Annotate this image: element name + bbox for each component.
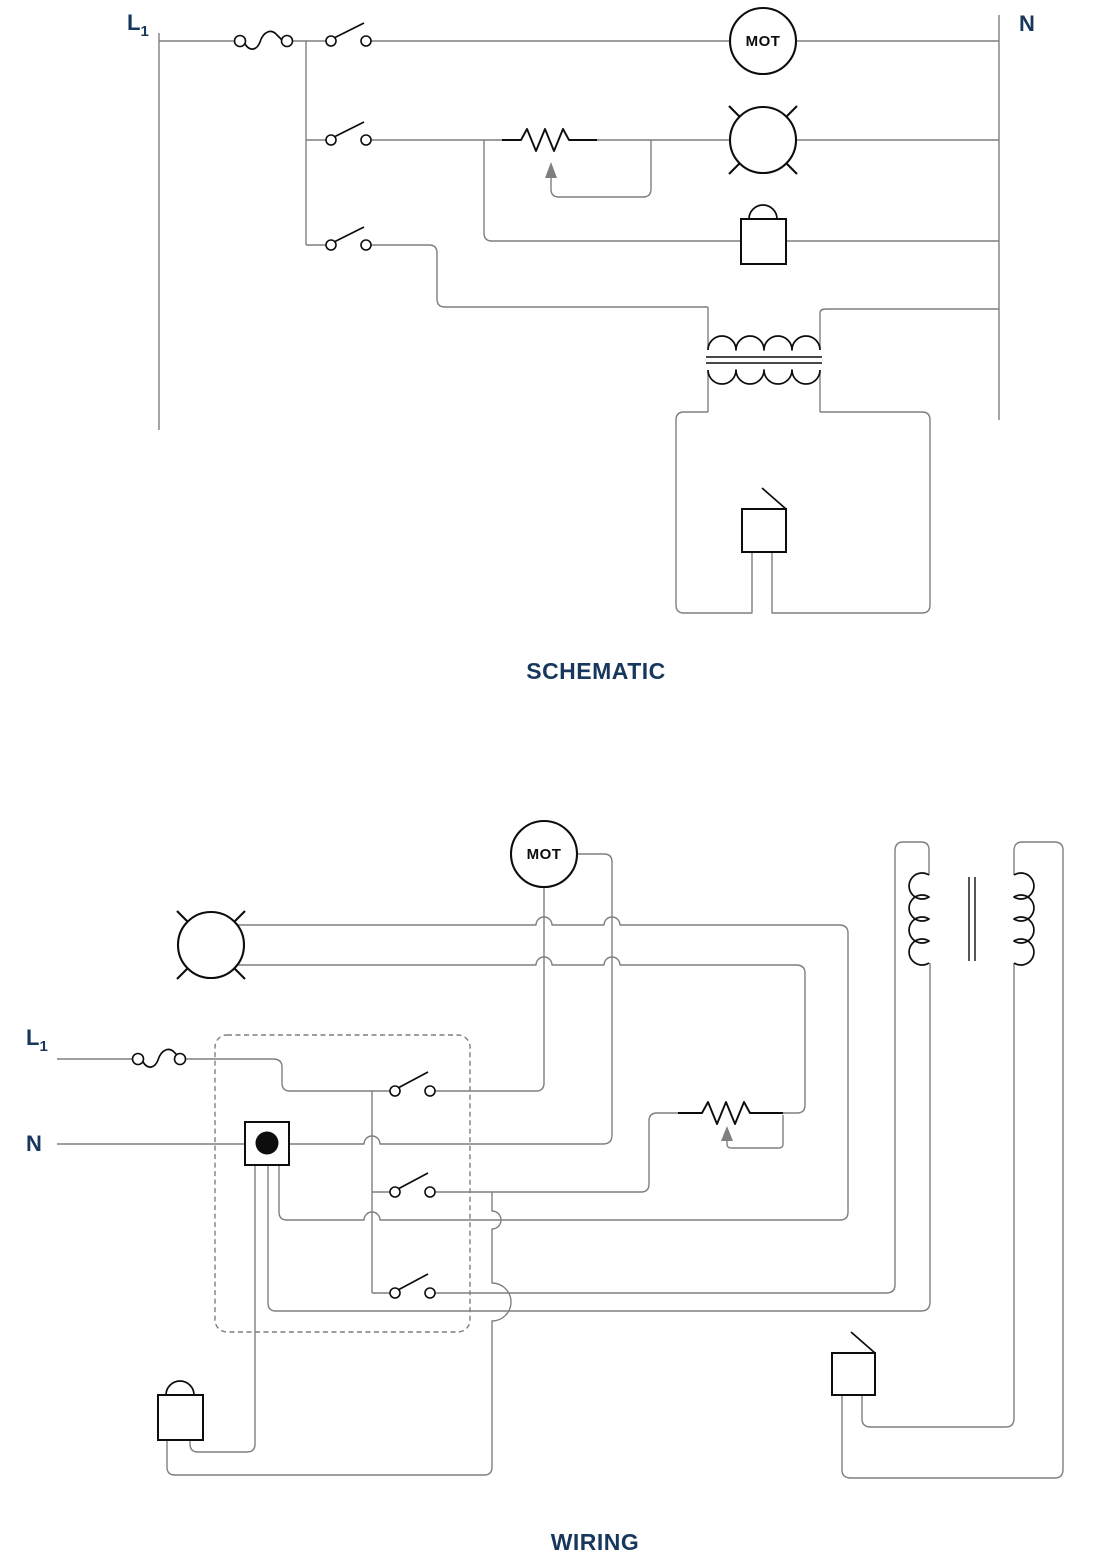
heater-rheostat-symbol (678, 1102, 783, 1141)
motor-symbol: MOT (730, 8, 796, 74)
lamp-symbol (177, 911, 245, 979)
fuse-symbol (235, 31, 293, 49)
switch-3-terminal-right (361, 240, 371, 250)
wire-row3-to-transformer (371, 245, 708, 307)
fuse-terminal-right (175, 1054, 186, 1065)
wire-bell-loop-left (676, 412, 752, 613)
schematic-caption: SCHEMATIC (526, 658, 666, 684)
switch-3-blade (334, 227, 364, 242)
wire-branch-to-buzzer (484, 140, 741, 241)
wire-switch3-to-primary-top (435, 842, 929, 1293)
switch-2-symbol (326, 122, 371, 145)
fuse-element (245, 31, 282, 49)
chime-body (832, 1353, 875, 1395)
chime-striker (762, 488, 786, 509)
bell-dome (166, 1381, 194, 1395)
switch-1-terminal-left (326, 36, 336, 46)
bell-symbol (158, 1381, 203, 1440)
lamp-symbol (729, 106, 797, 174)
buzzer-dome (749, 205, 777, 219)
junction-box-outline (215, 1035, 470, 1332)
switch-1-symbol (390, 1072, 435, 1096)
switch-1-symbol (326, 23, 371, 46)
switch-3-symbol (390, 1274, 435, 1298)
primary-coil (708, 336, 820, 350)
l1-label: L1 (127, 10, 149, 40)
switch-2-blade (334, 122, 364, 137)
lamp-circle (178, 912, 244, 978)
switch-2-blade (398, 1173, 428, 1189)
switch-1-blade (398, 1072, 428, 1088)
switch-2-terminal-right (425, 1187, 435, 1197)
chime-striker (851, 1332, 875, 1353)
wiring-caption: WIRING (551, 1529, 640, 1555)
wire-l1-rail (159, 33, 234, 430)
switch-2-terminal-left (326, 135, 336, 145)
wire-bell-loop-right (772, 412, 930, 613)
secondary-coil (1014, 873, 1034, 965)
chime-body (742, 509, 786, 552)
chime-symbol (832, 1332, 875, 1395)
fuse-terminal-left (133, 1054, 144, 1065)
wire-wiper-loop (551, 140, 651, 197)
buzzer-symbol (741, 205, 786, 264)
transformer-symbol (909, 873, 1034, 965)
wire-lamp-top-to-receptacle (237, 917, 848, 1220)
wire-fuse-to-switch1 (186, 1059, 390, 1091)
switch-3-blade (398, 1274, 428, 1290)
circuit-diagram-page: MOT L1 N SCHEMATIC (0, 0, 1096, 1568)
bell-body (158, 1395, 203, 1440)
wire-rheostat-to-switch2 (435, 1113, 678, 1192)
wiper-arrow-icon (545, 162, 557, 178)
wiring-section: MOT L1 N WIRING (26, 821, 1063, 1555)
motor-label: MOT (746, 33, 781, 50)
switch-3-symbol (326, 227, 371, 250)
neutral-label: N (1019, 11, 1035, 36)
switch-1-terminal-right (361, 36, 371, 46)
motor-label: MOT (527, 846, 562, 863)
wire-switch2-branch-to-bell (167, 1192, 511, 1475)
switch-1-blade (334, 23, 364, 38)
motor-symbol: MOT (511, 821, 577, 887)
primary-coil (909, 873, 929, 965)
wiper-arrow-icon (721, 1126, 733, 1141)
transformer-symbol (706, 336, 822, 384)
wire-wiper-link (727, 1115, 783, 1148)
switch-3-terminal-right (425, 1288, 435, 1298)
transformer-core (706, 357, 822, 363)
wire-switch1-to-motor (435, 887, 544, 1091)
neutral-label: N (26, 1131, 42, 1156)
switch-2-terminal-left (390, 1187, 400, 1197)
l1-label: L1 (26, 1025, 48, 1055)
switch-3-terminal-left (390, 1288, 400, 1298)
resistor-zigzag (678, 1102, 783, 1124)
wire-branch-bus (293, 41, 326, 245)
wire-switch-bus (372, 1091, 390, 1293)
switch-3-terminal-left (326, 240, 336, 250)
fuse-terminal-right (282, 36, 293, 47)
wire-secondary-legs (708, 370, 820, 412)
switch-2-symbol (390, 1173, 435, 1197)
wire-primary-legs (708, 307, 999, 350)
schematic-section: MOT L1 N SCHEMATIC (127, 8, 1035, 684)
switch-2-terminal-right (361, 135, 371, 145)
chime-symbol (742, 488, 786, 552)
switch-1-terminal-right (425, 1086, 435, 1096)
fuse-terminal-left (235, 36, 246, 47)
receptacle-dot (256, 1132, 279, 1155)
wire-receptacle-to-motor-neutral (289, 854, 612, 1144)
receptacle-symbol (245, 1122, 289, 1165)
fuse-symbol (133, 1049, 186, 1067)
wire-secondary-bottom-to-chime (862, 963, 1014, 1427)
buzzer-body (741, 219, 786, 264)
lamp-circle (730, 107, 796, 173)
transformer-core (969, 877, 975, 961)
heater-rheostat-symbol (502, 129, 597, 178)
secondary-coil (708, 370, 820, 384)
switch-1-terminal-left (390, 1086, 400, 1096)
resistor-zigzag (502, 129, 597, 151)
diagram-canvas: MOT L1 N SCHEMATIC (0, 0, 1096, 1568)
